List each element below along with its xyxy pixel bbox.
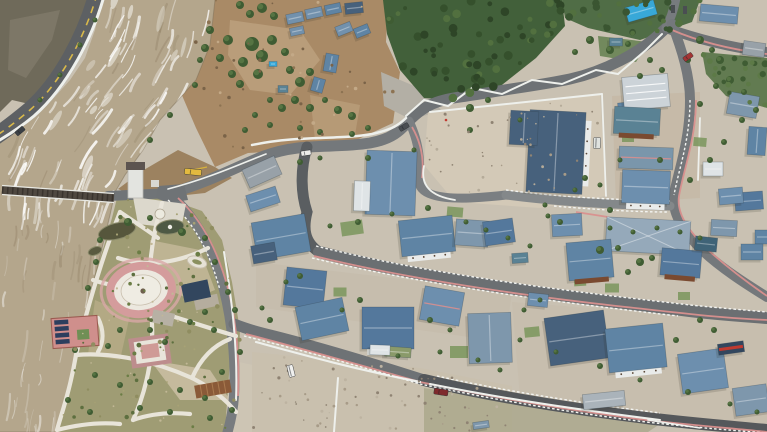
- tree-highlight: [528, 244, 531, 247]
- scatter-shrub: [224, 282, 228, 286]
- scatter-shrub: [466, 61, 472, 67]
- scatter-shrub: [655, 29, 660, 34]
- scatter-shrub: [501, 7, 510, 16]
- scatter-shrub: [448, 124, 450, 126]
- tree-highlight: [741, 89, 744, 92]
- tree-highlight: [225, 289, 228, 292]
- scatter-shrub: [217, 41, 220, 44]
- tree-highlight: [92, 372, 95, 375]
- scatter-shrub: [477, 77, 485, 85]
- tree-highlight: [287, 67, 291, 71]
- scatter-shrub: [166, 381, 168, 383]
- scatter-shrub: [193, 348, 195, 350]
- car-windshield: [439, 389, 440, 393]
- scatter-shrub: [643, 2, 648, 7]
- scatter-shrub: [203, 376, 206, 379]
- tree-highlight: [615, 245, 618, 248]
- tree-highlight: [349, 113, 353, 117]
- scatter-shrub: [557, 7, 565, 15]
- building: [549, 213, 583, 239]
- scatter-shrub: [466, 421, 469, 424]
- tree-highlight: [147, 137, 150, 140]
- scatter-shrub: [118, 215, 122, 219]
- tree-highlight: [522, 308, 525, 311]
- tree-highlight: [607, 207, 610, 210]
- scatter-shrub: [453, 427, 455, 429]
- scatter-shrub: [491, 53, 497, 59]
- tree-highlight: [467, 105, 471, 109]
- tree-highlight: [260, 306, 263, 309]
- building: [701, 162, 724, 179]
- scatter-shrub: [332, 368, 335, 371]
- scatter-shrub: [207, 219, 209, 221]
- scatter-shrub: [517, 24, 523, 30]
- scatter-shrub: [386, 377, 388, 379]
- building: [480, 218, 516, 249]
- scatter-shrub: [223, 134, 227, 138]
- scatter-shrub: [527, 139, 528, 140]
- scatter-shrub: [412, 368, 414, 370]
- scatter-shrub: [487, 415, 489, 417]
- scatter-shrub: [576, 114, 577, 115]
- scatter-shrub: [457, 85, 465, 93]
- garden-patch: [524, 326, 540, 338]
- tree-highlight: [608, 226, 611, 229]
- scatter-shrub: [238, 338, 242, 342]
- scatter-shrub: [333, 405, 336, 408]
- scatter-shrub: [444, 113, 447, 116]
- tree-highlight: [202, 309, 205, 312]
- scatter-shrub: [128, 282, 132, 286]
- scatter-shrub: [451, 377, 454, 380]
- scatter-shrub: [147, 265, 149, 267]
- aerial-village-photo: [0, 0, 767, 432]
- scatter-shrub: [163, 349, 165, 351]
- tree-highlight: [412, 148, 415, 151]
- scatter-shrub: [395, 427, 397, 429]
- tree-highlight: [117, 327, 120, 330]
- tree-highlight: [396, 354, 399, 357]
- tree-highlight: [271, 13, 275, 17]
- tree-highlight: [387, 17, 391, 21]
- scatter-shrub: [165, 286, 168, 289]
- scatter-shrub: [721, 66, 726, 71]
- scatter-shrub: [130, 373, 132, 375]
- scatter-shrub: [421, 378, 423, 380]
- scatter-shrub: [712, 73, 716, 77]
- tree-highlight: [85, 285, 88, 288]
- scatter-shrub: [521, 113, 523, 115]
- scatter-shrub: [159, 346, 161, 348]
- scatter-shrub: [520, 138, 523, 141]
- garden-patch: [605, 284, 619, 293]
- tree-highlight: [498, 368, 501, 371]
- tree-highlight: [597, 363, 600, 366]
- scatter-shrub: [762, 103, 767, 108]
- scatter-shrub: [550, 103, 551, 104]
- tree-highlight: [582, 175, 585, 178]
- scatter-shrub: [520, 33, 526, 39]
- booth: [151, 180, 159, 187]
- scatter-shrub: [152, 301, 154, 303]
- pavilion-core: [140, 343, 160, 359]
- scatter-shrub: [177, 320, 179, 322]
- building: [744, 126, 767, 158]
- tree-highlight: [229, 71, 233, 75]
- tree-highlight: [292, 97, 296, 101]
- scatter-shrub: [485, 58, 493, 66]
- tree-highlight: [219, 369, 222, 372]
- scatter-shrub: [299, 72, 301, 74]
- tree-highlight: [318, 156, 321, 159]
- scatter-shrub: [343, 388, 346, 391]
- scatter-shrub: [147, 310, 149, 312]
- scatter-shrub: [290, 94, 292, 96]
- tree-highlight: [707, 157, 710, 160]
- red-flag: [445, 119, 448, 122]
- tree-highlight: [697, 37, 701, 41]
- scatter-shrub: [396, 11, 401, 16]
- tree-highlight: [197, 57, 200, 60]
- scatter-shrub: [125, 415, 129, 419]
- gate-post: [683, 6, 687, 14]
- scatter-shrub: [194, 40, 198, 44]
- scatter-shrub: [376, 396, 379, 399]
- scatter-shrub: [232, 398, 235, 401]
- scatter-shrub: [496, 36, 504, 44]
- scatter-shrub: [242, 88, 244, 90]
- scatter-shrub: [320, 410, 323, 413]
- scatter-shrub: [451, 393, 453, 395]
- scatter-shrub: [165, 330, 168, 333]
- scatter-shrub: [430, 418, 432, 420]
- tree-highlight: [607, 47, 611, 51]
- scatter-shrub: [482, 155, 484, 157]
- roof-ridge: [514, 258, 526, 259]
- scatter-shrub: [722, 80, 727, 85]
- tree-highlight: [506, 236, 509, 239]
- scatter-shrub: [127, 303, 130, 306]
- scatter-shrub: [548, 179, 550, 181]
- tree-highlight: [518, 118, 521, 121]
- tree-highlight: [202, 45, 206, 49]
- scatter-shrub: [333, 114, 335, 116]
- building: [602, 323, 667, 379]
- scatter-shrub: [258, 58, 261, 61]
- scatter-shrub: [207, 20, 211, 24]
- scatter-shrub: [429, 159, 431, 161]
- scatter-shrub: [177, 405, 179, 407]
- scatter-shrub: [488, 40, 494, 46]
- scatter-shrub: [73, 347, 77, 351]
- tree-highlight: [572, 49, 575, 52]
- scatter-shrub: [430, 47, 436, 53]
- scatter-shrub: [295, 403, 297, 405]
- scatter-shrub: [420, 31, 428, 39]
- tree-highlight: [267, 317, 270, 320]
- tree-highlight: [753, 107, 756, 110]
- scatter-shrub: [691, 8, 697, 14]
- building: [351, 181, 371, 214]
- tree-highlight: [464, 220, 467, 223]
- tree-highlight: [167, 409, 170, 412]
- scatter-shrub: [219, 91, 222, 94]
- scatter-shrub: [142, 277, 144, 279]
- tree-highlight: [297, 273, 300, 276]
- scatter-shrub: [707, 58, 713, 64]
- scatter-shrub: [133, 373, 136, 376]
- tree-highlight: [177, 387, 180, 390]
- scatter-shrub: [528, 17, 533, 22]
- tree-highlight: [202, 235, 205, 238]
- scatter-shrub: [489, 82, 498, 91]
- tree-highlight: [246, 38, 254, 46]
- tree-highlight: [655, 226, 658, 229]
- tree-highlight: [546, 214, 549, 217]
- scatter-shrub: [87, 388, 89, 390]
- scatter-shrub: [516, 183, 518, 185]
- scatter-shrub: [82, 333, 84, 335]
- scatter-shrub: [232, 146, 234, 148]
- scatter-shrub: [401, 400, 403, 402]
- scatter-shrub: [740, 76, 745, 81]
- scatter-shrub: [355, 396, 357, 398]
- scatter-shrub: [292, 66, 295, 69]
- tree-highlight: [598, 183, 601, 186]
- scatter-shrub: [288, 380, 290, 382]
- tree-highlight: [267, 122, 270, 125]
- scatter-shrub: [524, 143, 527, 146]
- building: [739, 244, 764, 263]
- scatter-shrub: [273, 367, 275, 369]
- scatter-shrub: [597, 13, 602, 18]
- scatter-shrub: [634, 2, 639, 7]
- scatter-shrub: [424, 402, 427, 405]
- scatter-shrub: [147, 318, 150, 321]
- scatter-shrub: [444, 76, 449, 81]
- building: [692, 236, 718, 255]
- scatter-shrub: [535, 123, 537, 125]
- scatter-shrub: [192, 322, 195, 325]
- tree-highlight: [267, 97, 270, 100]
- scatter-shrub: [389, 427, 392, 430]
- building: [697, 4, 739, 27]
- scatter-shrub: [316, 424, 319, 427]
- scatter-shrub: [449, 94, 458, 103]
- scatter-shrub: [563, 173, 566, 176]
- tree-highlight: [284, 280, 287, 283]
- scatter-shrub: [291, 53, 294, 56]
- scatter-shrub: [443, 15, 450, 22]
- scatter-shrub: [464, 406, 466, 408]
- scatter-shrub: [543, 116, 545, 118]
- tree-highlight: [390, 212, 393, 215]
- tree-highlight: [229, 407, 232, 410]
- scatter-shrub: [452, 10, 461, 19]
- building: [619, 170, 671, 211]
- scatter-shrub: [344, 378, 347, 381]
- scatter-shrub: [580, 7, 587, 14]
- scatter-shrub: [99, 415, 101, 417]
- scatter-shrub: [128, 246, 130, 248]
- scatter-shrub: [285, 401, 288, 404]
- scatter-shrub: [354, 87, 358, 91]
- tree-highlight: [211, 327, 214, 330]
- tree-highlight: [87, 409, 90, 412]
- scatter-shrub: [132, 273, 136, 277]
- tree-highlight: [657, 157, 660, 160]
- scatter-shrub: [701, 52, 706, 57]
- building: [739, 40, 766, 60]
- scatter-shrub: [550, 21, 558, 29]
- scatter-shrub: [664, 26, 669, 31]
- scatter-shrub: [622, 8, 630, 16]
- scatter-shrub: [176, 284, 178, 286]
- scatter-shrub: [130, 206, 132, 208]
- scatter-shrub: [428, 378, 429, 379]
- scatter-shrub: [476, 31, 482, 37]
- scatter-shrub: [179, 282, 183, 286]
- tree-highlight: [257, 51, 264, 58]
- building: [509, 252, 528, 266]
- scatter-shrub: [527, 118, 528, 119]
- scatter-shrub: [262, 48, 264, 50]
- scatter-shrub: [228, 277, 230, 279]
- tree-highlight: [179, 229, 183, 233]
- scatter-shrub: [433, 378, 435, 380]
- scatter-shrub: [426, 137, 428, 139]
- tree-highlight: [296, 78, 302, 84]
- tree-highlight: [232, 307, 235, 310]
- scatter-shrub: [135, 379, 139, 383]
- tree-highlight: [254, 70, 260, 76]
- tree-highlight: [237, 2, 241, 6]
- tree-highlight: [484, 228, 487, 231]
- tree-highlight: [587, 37, 591, 41]
- scatter-shrub: [90, 362, 92, 364]
- scatter-shrub: [553, 187, 555, 189]
- tree-highlight: [717, 57, 721, 61]
- tree-highlight: [467, 127, 470, 130]
- tree-highlight: [307, 105, 311, 109]
- tree-highlight: [117, 382, 120, 385]
- scatter-shrub: [675, 19, 683, 27]
- scatter-shrub: [242, 146, 245, 149]
- scatter-shrub: [390, 394, 393, 397]
- scatter-shrub: [187, 329, 191, 333]
- scatter-shrub: [376, 391, 379, 394]
- tree-highlight: [365, 155, 368, 158]
- scatter-shrub: [346, 402, 349, 405]
- scatter-shrub: [181, 310, 183, 312]
- scatter-shrub: [269, 398, 271, 400]
- building: [716, 187, 744, 208]
- tree-highlight: [147, 379, 150, 382]
- tree-highlight: [58, 73, 61, 76]
- tree-highlight: [279, 105, 283, 109]
- scatter-shrub: [116, 233, 118, 235]
- scatter-shrub: [487, 1, 492, 6]
- scatter-shrub: [491, 121, 494, 124]
- scatter-shrub: [140, 350, 142, 352]
- scatter-shrub: [404, 383, 406, 385]
- scatter-shrub: [191, 425, 194, 428]
- scatter-shrub: [437, 42, 443, 48]
- scatter-shrub: [452, 164, 454, 166]
- scatter-shrub: [94, 402, 96, 404]
- building: [541, 310, 610, 369]
- scatter-shrub: [221, 424, 223, 426]
- tree-highlight: [247, 11, 251, 15]
- tree-highlight: [739, 117, 742, 120]
- scatter-shrub: [504, 424, 506, 426]
- scatter-shrub: [423, 49, 427, 53]
- scatter-shrub: [165, 391, 167, 393]
- scatter-shrub: [193, 222, 196, 225]
- scatter-shrub: [439, 406, 441, 408]
- tree-highlight: [147, 327, 150, 330]
- scatter-shrub: [341, 91, 343, 93]
- tree-highlight: [340, 308, 343, 311]
- scatter-shrub: [495, 405, 498, 408]
- building: [657, 248, 702, 283]
- scatter-shrub: [232, 59, 235, 62]
- scatter-shrub: [279, 395, 282, 398]
- tree-highlight: [554, 350, 557, 353]
- tree-highlight: [93, 18, 96, 21]
- scatter-shrub: [206, 252, 207, 253]
- tree-highlight: [357, 297, 360, 300]
- scatter-shrub: [431, 71, 437, 77]
- garden-patch: [334, 288, 347, 297]
- scatter-shrub: [210, 226, 214, 230]
- tree-highlight: [307, 69, 311, 73]
- scatter-shrub: [261, 392, 262, 393]
- tree-highlight: [258, 4, 264, 10]
- scatter-shrub: [477, 125, 479, 127]
- scatter-shrub: [363, 82, 366, 85]
- tree-highlight: [485, 97, 488, 100]
- scatter-shrub: [467, 131, 470, 134]
- scatter-shrub: [108, 320, 110, 322]
- scatter-shrub: [190, 213, 194, 217]
- scatter-shrub: [303, 419, 304, 420]
- tree-highlight: [349, 131, 352, 134]
- scatter-shrub: [252, 426, 255, 429]
- tree-highlight: [625, 41, 628, 44]
- scatter-shrub: [202, 87, 205, 90]
- tree-highlight: [697, 101, 700, 104]
- scatter-shrub: [747, 100, 752, 105]
- aerial-photo-figure: [0, 0, 767, 432]
- scatter-shrub: [160, 322, 163, 325]
- tree-highlight: [192, 82, 195, 85]
- scatter-shrub: [163, 417, 165, 419]
- scatter-shrub: [132, 352, 136, 356]
- scatter-shrub: [186, 363, 188, 365]
- scatter-shrub: [533, 183, 535, 185]
- scatter-shrub: [491, 165, 493, 167]
- scatter-shrub: [469, 191, 470, 192]
- building: [396, 215, 457, 263]
- tree-highlight: [365, 125, 368, 128]
- tree-highlight: [297, 159, 300, 162]
- scatter-shrub: [72, 415, 76, 419]
- fountain: [155, 209, 165, 219]
- scatter-shrub: [383, 90, 386, 93]
- scatter-shrub: [760, 71, 766, 77]
- tree-highlight: [728, 402, 731, 405]
